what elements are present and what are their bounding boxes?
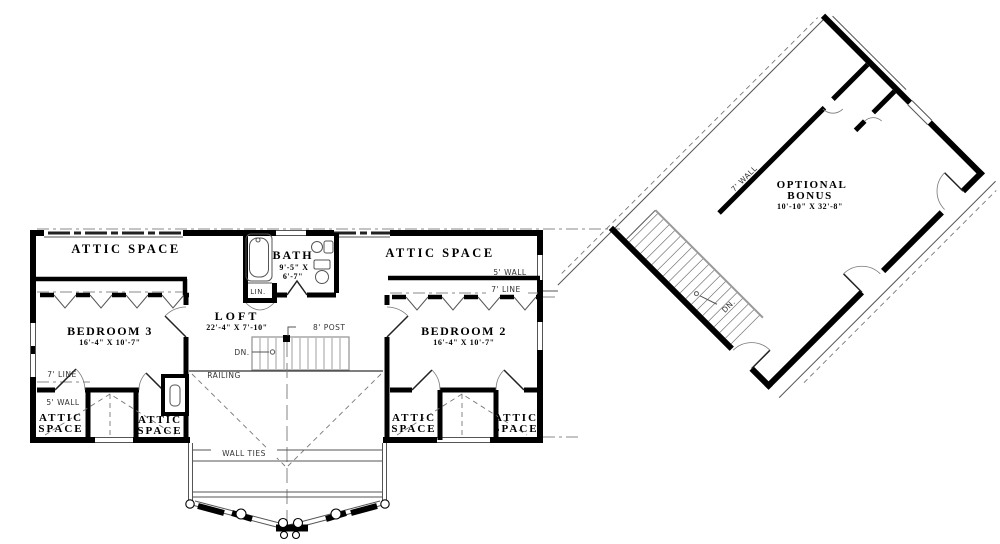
attic-closet-walls bbox=[37, 369, 540, 440]
bonus-label-line2: BONUS bbox=[787, 190, 832, 202]
attic-br1-line2: SPACE bbox=[391, 423, 436, 435]
bath-dims-2: 6'-7" bbox=[283, 272, 303, 281]
stairs-bonus bbox=[626, 210, 762, 346]
stairs-main bbox=[252, 327, 349, 370]
bedroom3-label: BEDROOM 3 bbox=[67, 324, 153, 338]
chimney-chase bbox=[163, 376, 187, 414]
floor-plan-drawing: 7' WALL DN. ATTIC SPACE ATTIC SPACE BATH… bbox=[0, 0, 1000, 544]
wall5-left-label: 5' WALL bbox=[46, 398, 80, 407]
loft-dims: 22'-4" X 7'-10" bbox=[206, 323, 267, 332]
floor-plan-canvas: 7' WALL DN. ATTIC SPACE ATTIC SPACE BATH… bbox=[0, 0, 1000, 544]
bath-dims-1: 9'-5" X bbox=[279, 263, 308, 272]
post-label: 8' POST bbox=[313, 323, 346, 332]
dn-main-label: DN. bbox=[234, 348, 249, 357]
wall5-right-label: 5' WALL bbox=[493, 268, 527, 277]
bonus-walls bbox=[554, 9, 1000, 457]
bedroom3-dims: 16'-4" X 10'-7" bbox=[79, 338, 140, 347]
bedroom2-dims: 16'-4" X 10'-7" bbox=[433, 338, 494, 347]
post-8ft bbox=[283, 335, 290, 342]
line7-left-label: 7' LINE bbox=[47, 370, 76, 379]
railing-label: RAILING bbox=[207, 371, 241, 380]
bedroom2-label: BEDROOM 2 bbox=[421, 324, 507, 338]
attic-br2-line2: SPACE bbox=[493, 423, 538, 435]
linen-label: LIN. bbox=[250, 288, 265, 296]
tub-icon bbox=[246, 234, 272, 281]
line7-right-label: 7' LINE bbox=[491, 285, 520, 294]
toilet-icon bbox=[314, 260, 330, 284]
bath-label: BATH bbox=[272, 248, 313, 262]
sink-icon bbox=[312, 241, 334, 253]
attic-bl1-line2: SPACE bbox=[38, 423, 83, 435]
attic-top-right-label: ATTIC SPACE bbox=[385, 246, 494, 260]
wall-ties-label: WALL TIES bbox=[222, 449, 266, 458]
attic-bl2-line2: SPACE bbox=[137, 425, 182, 437]
bonus-room: 7' WALL DN. bbox=[554, 9, 1000, 457]
dn-bonus-label: DN. bbox=[720, 297, 737, 314]
bonus-dims: 10'-10" X 32'-8" bbox=[777, 202, 843, 211]
loft-label: LOFT bbox=[215, 309, 260, 323]
attic-top-left-label: ATTIC SPACE bbox=[71, 242, 180, 256]
